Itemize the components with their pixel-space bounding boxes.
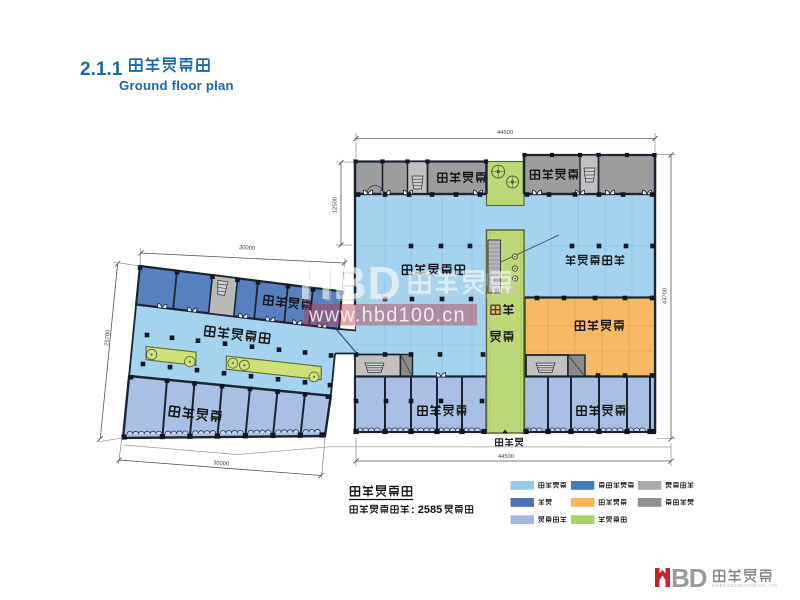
svg-text:HAIBO DECORATION CO., LTD.: HAIBO DECORATION CO., LTD. (712, 583, 779, 588)
svg-text:30000: 30000 (239, 245, 255, 252)
svg-text:30000: 30000 (213, 460, 230, 467)
svg-text:BD: BD (671, 563, 707, 593)
svg-text:12500: 12500 (333, 197, 339, 213)
svg-text:44500: 44500 (498, 454, 514, 460)
svg-text:www.hbd100.cn: www.hbd100.cn (308, 305, 466, 327)
svg-text:25700: 25700 (104, 330, 112, 347)
svg-text:44500: 44500 (497, 130, 513, 136)
svg-text:: 2585: : 2585 (411, 504, 442, 516)
svg-text:Ground floor plan: Ground floor plan (119, 78, 234, 93)
svg-text:HBD: HBD (299, 257, 402, 309)
svg-text:2.1.1: 2.1.1 (80, 59, 123, 80)
svg-text:43700: 43700 (663, 288, 669, 304)
